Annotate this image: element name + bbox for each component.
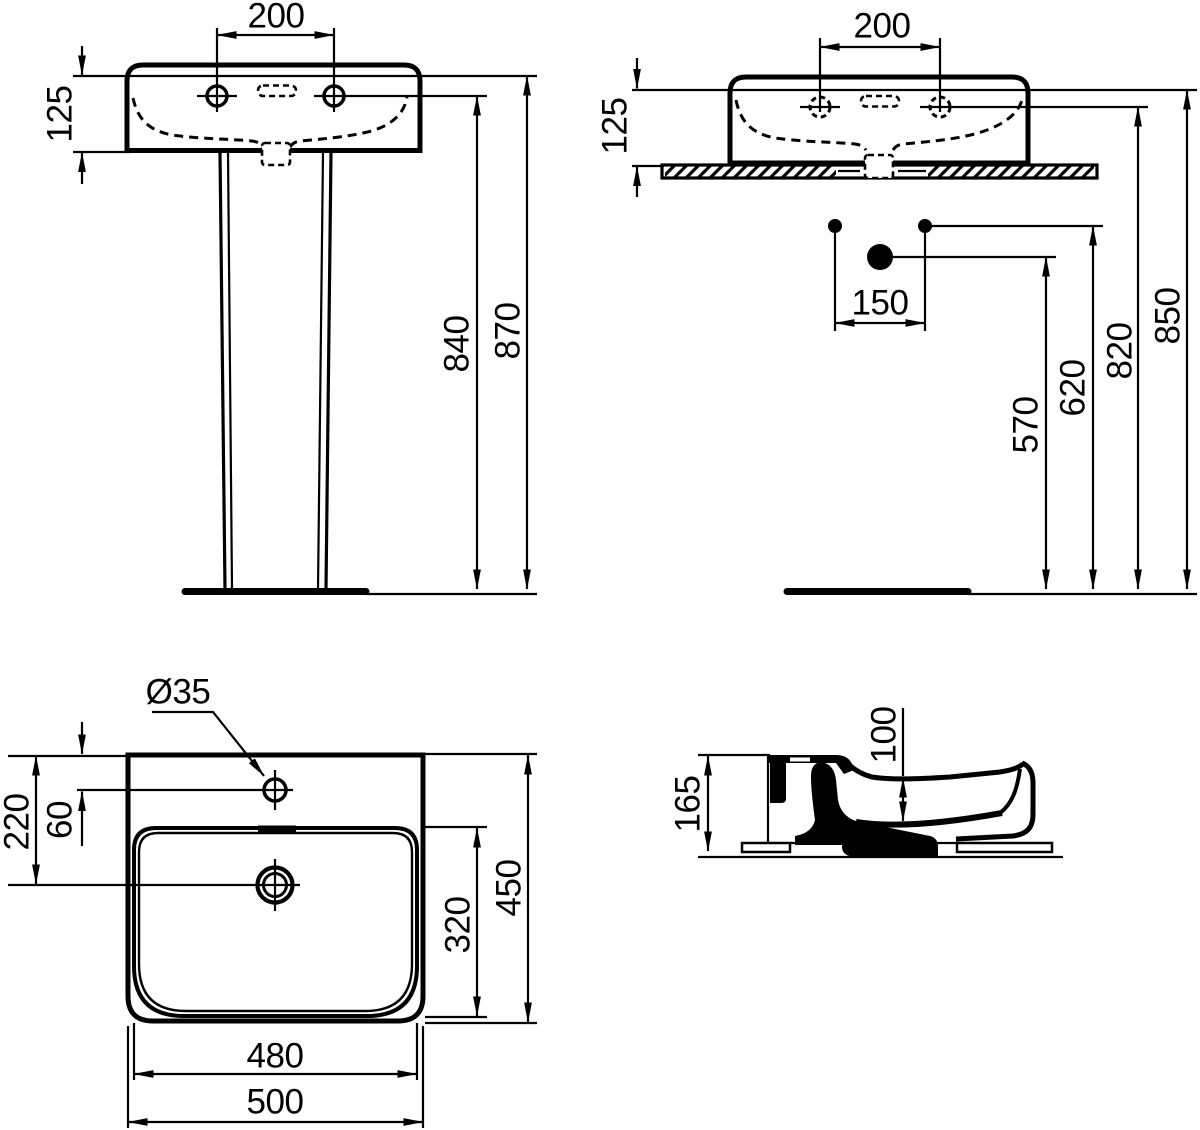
dim-plan-rim-to-tap: 60 [41, 801, 80, 839]
dim-front-wall-trap-height: 570 [1007, 397, 1046, 454]
overflow-slot-dashed [861, 96, 899, 107]
technical-drawing-canvas: 200 125 840 870 [0, 0, 1200, 1130]
fixing-bolt-right [918, 219, 932, 233]
dim-front-wall-rim-depth: 125 [596, 98, 635, 155]
back-bracket [770, 763, 786, 803]
overflow-slot-dashed [258, 86, 296, 97]
fixing-bolt-left [828, 219, 842, 233]
drain-hidden-dashed [262, 143, 290, 165]
dim-side-overall-height: 165 [669, 776, 708, 833]
dim-front-wall-rim-height: 850 [1149, 288, 1188, 345]
dim-plan-bowl-depth: 320 [439, 897, 478, 954]
mounting-band-hatch-left [665, 167, 836, 177]
drawing-sheet: 200 125 840 870 [0, 0, 1200, 1130]
dim-front-pedestal-hole-height: 840 [438, 316, 477, 373]
dim-front-pedestal-tap-spacing: 200 [248, 0, 305, 36]
dim-plan-overall-depth: 450 [490, 860, 529, 917]
mounting-band-hatch-right [928, 167, 1094, 177]
drain-hidden-dashed [865, 155, 893, 178]
dim-front-pedestal-rim-depth: 125 [41, 86, 80, 143]
dim-front-wall-tap-spacing: 200 [854, 7, 911, 46]
basin-outline [127, 65, 420, 151]
dim-front-wall-bolt-height: 620 [1054, 360, 1093, 417]
dim-front-wall-hole-height: 820 [1101, 323, 1140, 380]
dim-front-pedestal-rim-height: 870 [489, 303, 528, 360]
dim-plan-overall-width: 500 [247, 1083, 304, 1122]
rim-back-slot [790, 758, 810, 762]
dim-side-bowl-height: 100 [865, 707, 904, 764]
dim-plan-tap-hole-diameter: Ø35 [146, 673, 211, 712]
trap-outlet-point [867, 244, 893, 270]
dim-plan-rim-to-drain: 220 [0, 794, 37, 851]
dim-plan-bowl-width: 480 [247, 1037, 304, 1076]
dim-front-wall-bolt-spacing: 150 [852, 284, 909, 323]
